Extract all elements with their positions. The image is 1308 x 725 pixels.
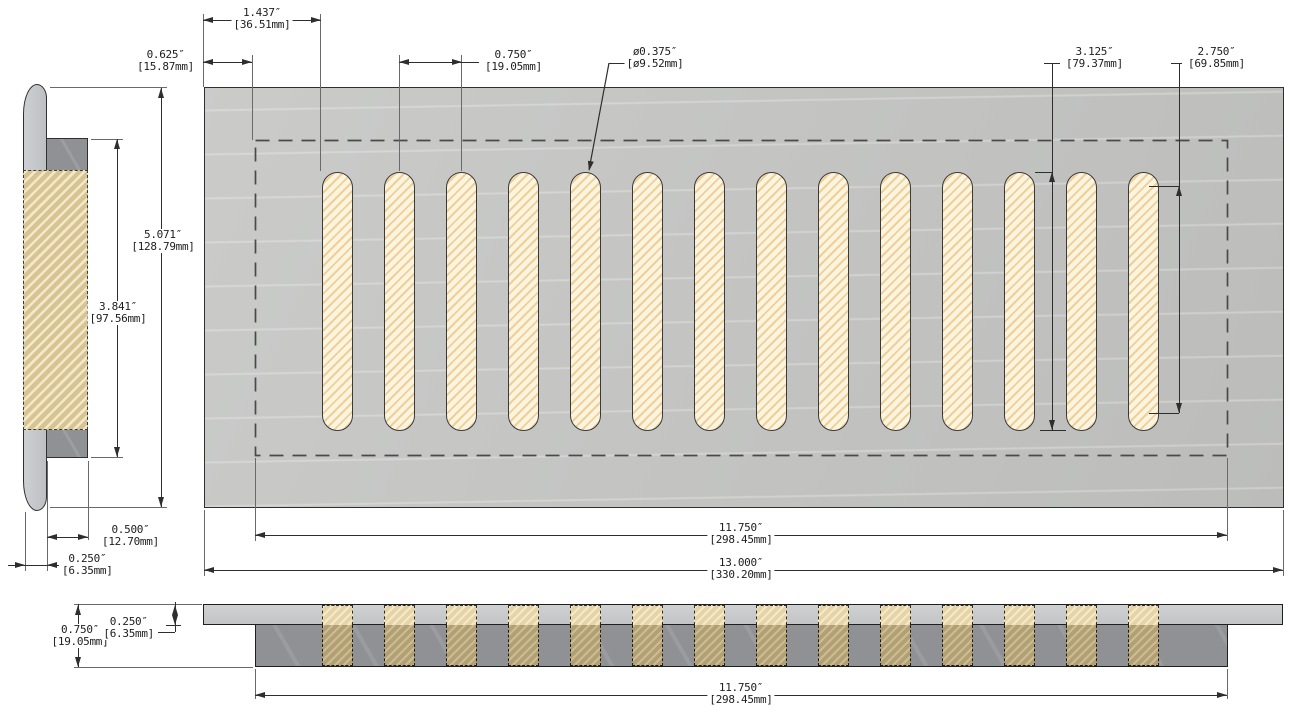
arrowhead xyxy=(158,497,164,507)
dim-value-mm: [69.85mm] xyxy=(1188,58,1245,70)
extension-line xyxy=(1283,510,1284,576)
dim-flange-thickness-label: 0.250″ [6.35mm] xyxy=(60,553,115,577)
arrowhead xyxy=(1049,420,1055,430)
arrowhead xyxy=(47,534,57,540)
arrowhead xyxy=(114,139,120,149)
dim-value-mm: [36.51mm] xyxy=(234,19,291,31)
extension-line xyxy=(88,461,89,540)
dim-edge-to-first-slot-label: 1.437″ [36.51mm] xyxy=(232,7,293,31)
extension-line xyxy=(50,507,167,508)
overlay-lines xyxy=(0,0,1308,725)
dimension-line xyxy=(1171,63,1182,64)
dim-value-mm: [128.79mm] xyxy=(131,241,194,253)
dim-value-mm: [79.37mm] xyxy=(1066,58,1123,70)
arrowhead xyxy=(1176,403,1182,413)
dim-value-mm: [298.45mm] xyxy=(709,694,772,706)
extension-line xyxy=(399,55,400,171)
dim-value-mm: [19.05mm] xyxy=(52,636,109,648)
opening-dashed-outline xyxy=(256,141,1228,456)
extension-line xyxy=(74,667,253,668)
extension-line xyxy=(252,55,253,140)
dim-value-mm: [12.70mm] xyxy=(102,536,159,548)
dim-opening-width-label: 11.750″ [298.45mm] xyxy=(707,522,774,546)
dim-value-mm: [6.35mm] xyxy=(103,628,154,640)
extension-line xyxy=(74,604,202,605)
arrowhead xyxy=(1217,692,1227,698)
arrowhead xyxy=(1273,567,1283,573)
diameter-leader-line xyxy=(589,63,609,170)
extension-line xyxy=(255,458,256,541)
extension-line xyxy=(320,14,321,171)
dim-value-mm: [298.45mm] xyxy=(709,534,772,546)
dim-slot-pitch-label: 0.750″ [19.05mm] xyxy=(483,49,544,73)
arrowhead xyxy=(255,532,265,538)
dimension-line xyxy=(1052,63,1053,430)
arrowhead xyxy=(78,534,88,540)
arrowhead xyxy=(203,59,213,65)
dim-front-plate-thickness-label: 0.250″ [6.35mm] xyxy=(101,616,156,640)
arrowhead xyxy=(158,88,164,98)
dim-slot-straight-label: 2.750″ [69.85mm] xyxy=(1186,46,1247,70)
dim-value-mm: [15.87mm] xyxy=(137,61,194,73)
arrowhead xyxy=(1217,532,1227,538)
arrowhead xyxy=(255,692,265,698)
dim-value-mm: [97.56mm] xyxy=(90,313,147,325)
arrowhead xyxy=(75,605,81,615)
extension-line xyxy=(47,461,48,571)
extension-line xyxy=(91,457,123,458)
arrowhead xyxy=(204,567,214,573)
dim-duct-depth-label: 0.500″ [12.70mm] xyxy=(100,524,161,548)
dim-value-mm: [6.35mm] xyxy=(62,565,113,577)
extension-line xyxy=(203,14,204,87)
dimension-line xyxy=(166,625,181,626)
arrowhead xyxy=(1176,186,1182,196)
extension-line xyxy=(25,512,26,571)
dimension-line xyxy=(158,632,175,633)
dimension-line xyxy=(1149,413,1179,414)
dim-front-opening-width-label: 11.750″ [298.45mm] xyxy=(707,682,774,706)
extension-line xyxy=(1227,458,1228,541)
arrowhead xyxy=(399,59,409,65)
arrowhead xyxy=(172,605,178,615)
arrowhead xyxy=(172,615,178,625)
dim-value-mm: [ø9.52mm] xyxy=(627,58,684,70)
dim-slot-diameter-label: ø0.375″ [ø9.52mm] xyxy=(625,46,686,70)
arrowhead xyxy=(1049,172,1055,182)
arrowhead xyxy=(15,562,25,568)
extension-line xyxy=(50,87,167,88)
extension-line xyxy=(1227,669,1228,699)
dim-overall-width-label: 13.000″ [330.20mm] xyxy=(707,557,774,581)
dim-overall-height-label: 5.071″ [128.79mm] xyxy=(129,229,196,253)
dimension-line xyxy=(1179,63,1180,413)
dimension-line xyxy=(161,88,162,507)
arrowhead xyxy=(114,447,120,457)
dim-value-mm: [19.05mm] xyxy=(485,61,542,73)
arrowhead xyxy=(452,59,462,65)
dimension-line xyxy=(117,139,118,457)
arrowhead xyxy=(311,17,321,23)
dim-value-mm: [330.20mm] xyxy=(709,569,772,581)
arrowhead xyxy=(47,562,57,568)
dim-edge-to-opening-label: 0.625″ [15.87mm] xyxy=(135,49,196,73)
technical-drawing-sheet: 1.437″ [36.51mm] 0.625″ [15.87mm] 0.750″… xyxy=(0,0,1308,725)
arrowhead xyxy=(75,657,81,667)
extension-line xyxy=(461,55,462,171)
dimension-line xyxy=(1149,186,1179,187)
arrowhead xyxy=(242,59,252,65)
dimension-line xyxy=(399,62,479,63)
arrowhead xyxy=(203,17,213,23)
dimension-line xyxy=(1040,430,1066,431)
dim-slot-length-label: 3.125″ [79.37mm] xyxy=(1064,46,1125,70)
dim-opening-height-label: 3.841″ [97.56mm] xyxy=(88,301,149,325)
